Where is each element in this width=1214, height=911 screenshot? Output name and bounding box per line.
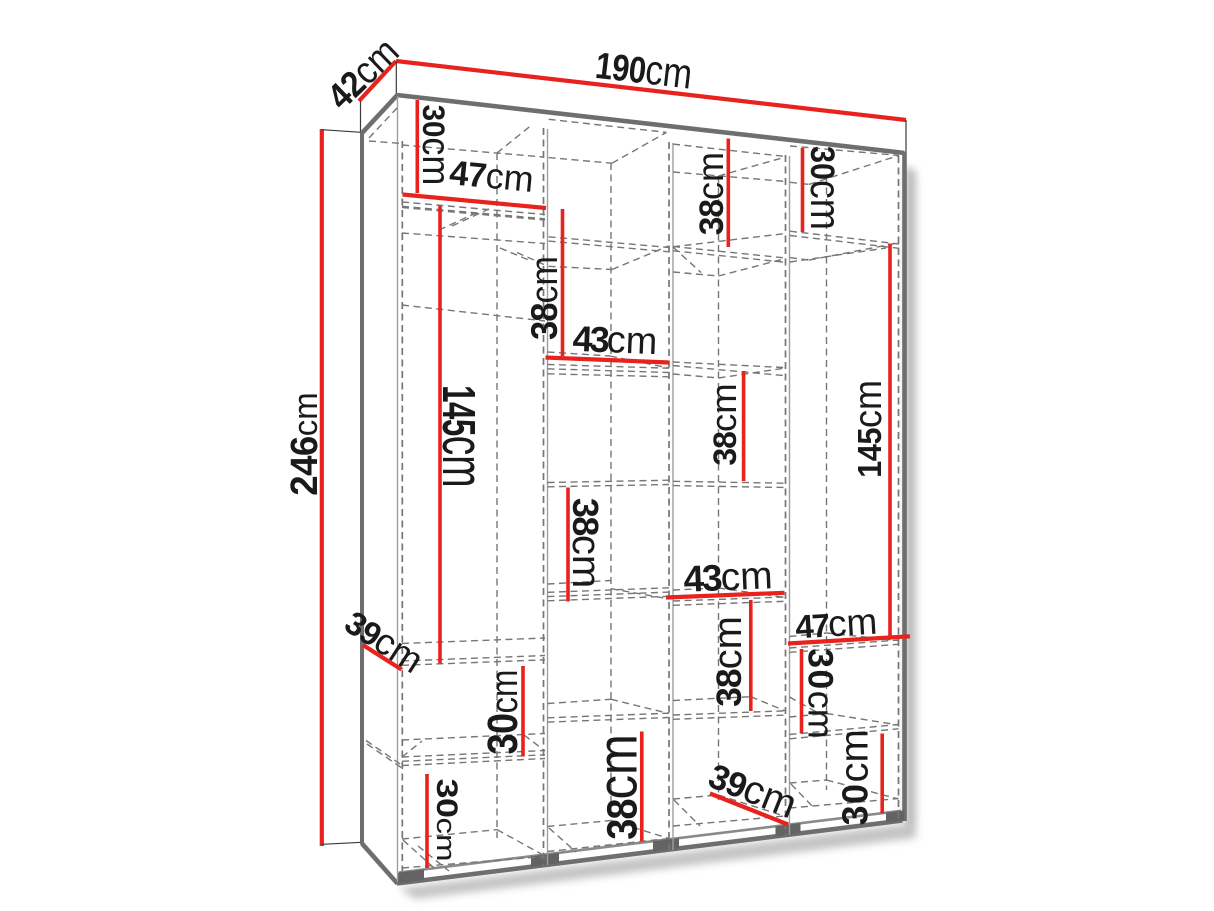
svg-text:38cm: 38cm — [588, 734, 649, 840]
svg-text:38cm: 38cm — [522, 256, 566, 340]
svg-text:38cm: 38cm — [564, 498, 608, 588]
svg-text:43cm: 43cm — [683, 554, 774, 601]
svg-text:30cm: 30cm — [833, 729, 877, 825]
svg-text:47cm: 47cm — [448, 151, 536, 200]
svg-text:246cm: 246cm — [282, 392, 325, 496]
svg-text:38cm: 38cm — [690, 152, 732, 235]
svg-text:30cm: 30cm — [801, 146, 848, 230]
svg-text:30cm: 30cm — [800, 648, 841, 739]
svg-text:30cm: 30cm — [478, 669, 527, 754]
svg-text:38cm: 38cm — [703, 383, 744, 465]
svg-text:30cm: 30cm — [431, 779, 464, 862]
svg-text:38cm: 38cm — [706, 616, 750, 707]
svg-text:43cm: 43cm — [572, 318, 658, 363]
svg-text:145cm: 145cm — [846, 380, 890, 478]
svg-text:47cm: 47cm — [794, 601, 878, 647]
